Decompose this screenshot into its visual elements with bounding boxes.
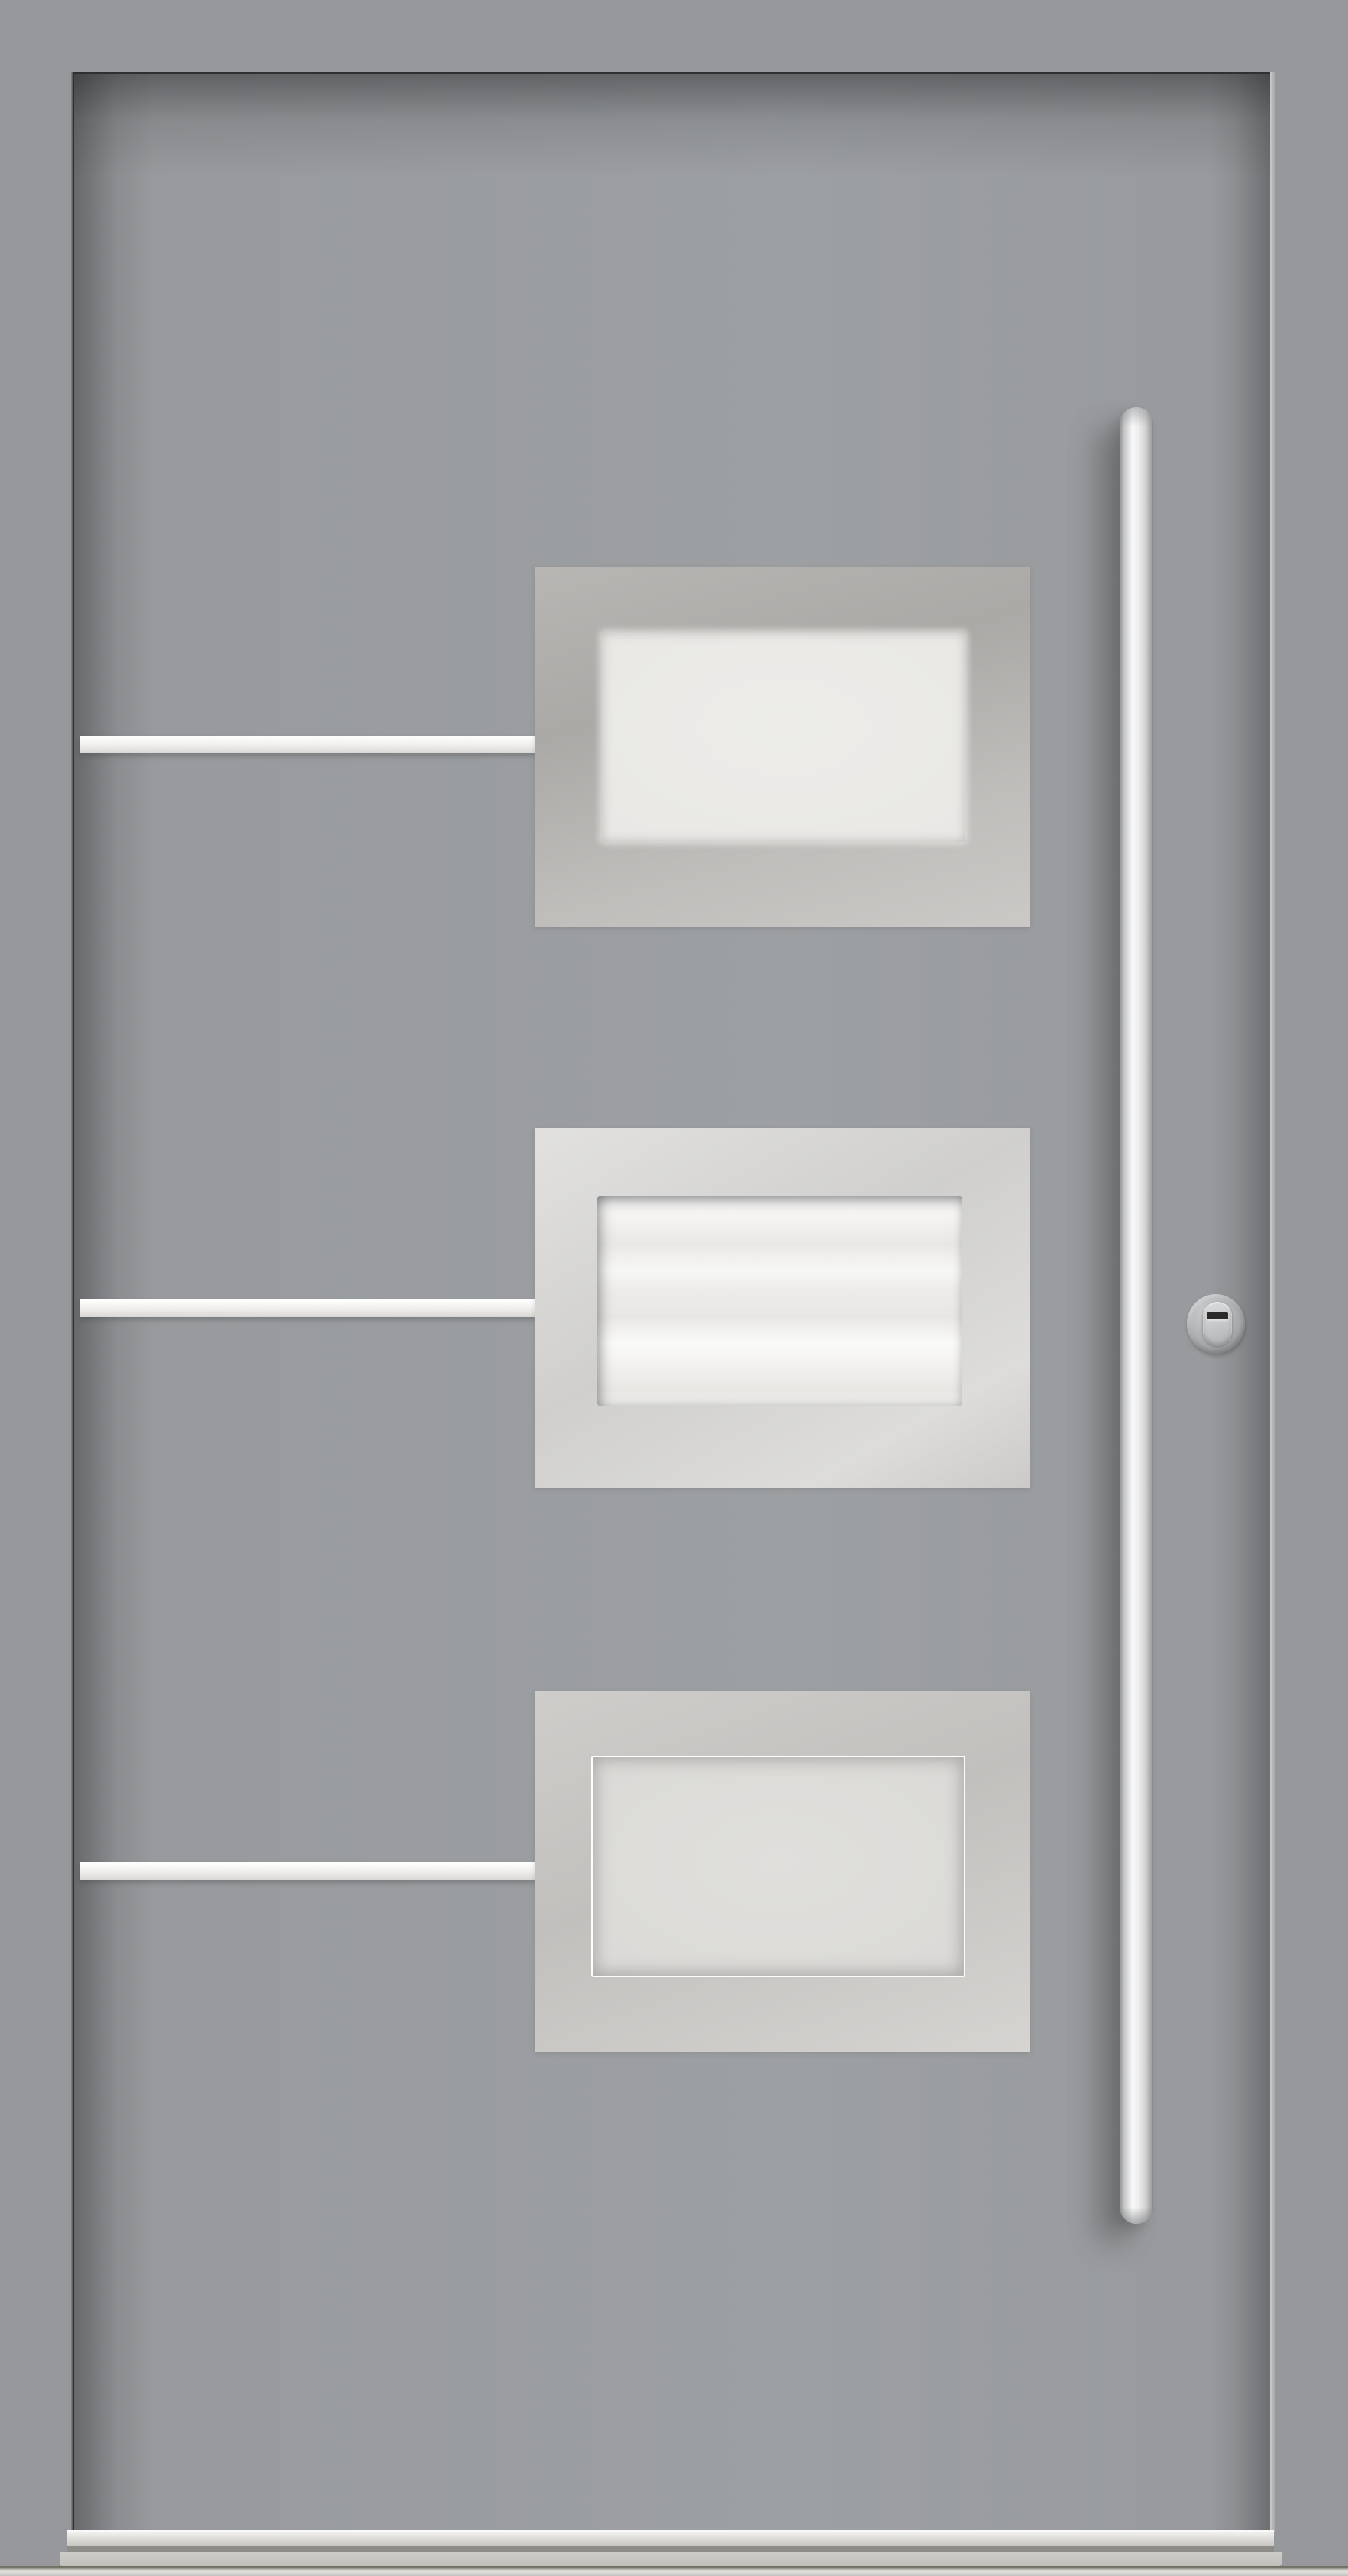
door-leaf — [74, 74, 1270, 2530]
frosted-glass-bottom — [591, 1756, 965, 1977]
frosted-glass-middle — [597, 1196, 962, 1406]
lock-rosette — [1187, 1294, 1245, 1354]
lock-cylinder-guard — [1203, 1302, 1232, 1346]
door-seam-right — [1270, 72, 1275, 2532]
decor-stripe-middle — [80, 1299, 535, 1317]
decor-stripe-bottom — [80, 1862, 535, 1880]
keyway-slot — [1207, 1312, 1228, 1319]
glazing-panel-top — [535, 567, 1030, 927]
floor-metal-strip — [0, 2566, 1348, 2576]
glazing-panel-bottom — [535, 1691, 1030, 2052]
threshold-weather-bar — [67, 2530, 1274, 2546]
decor-stripe-top — [80, 736, 535, 753]
frosted-glass-top — [602, 633, 965, 842]
door-product-photo — [0, 0, 1348, 2576]
threshold-shadow-line — [67, 2546, 1274, 2552]
pull-handle-bar — [1120, 407, 1153, 2224]
threshold-sill — [60, 2552, 1282, 2566]
glazing-panel-middle — [535, 1128, 1030, 1488]
